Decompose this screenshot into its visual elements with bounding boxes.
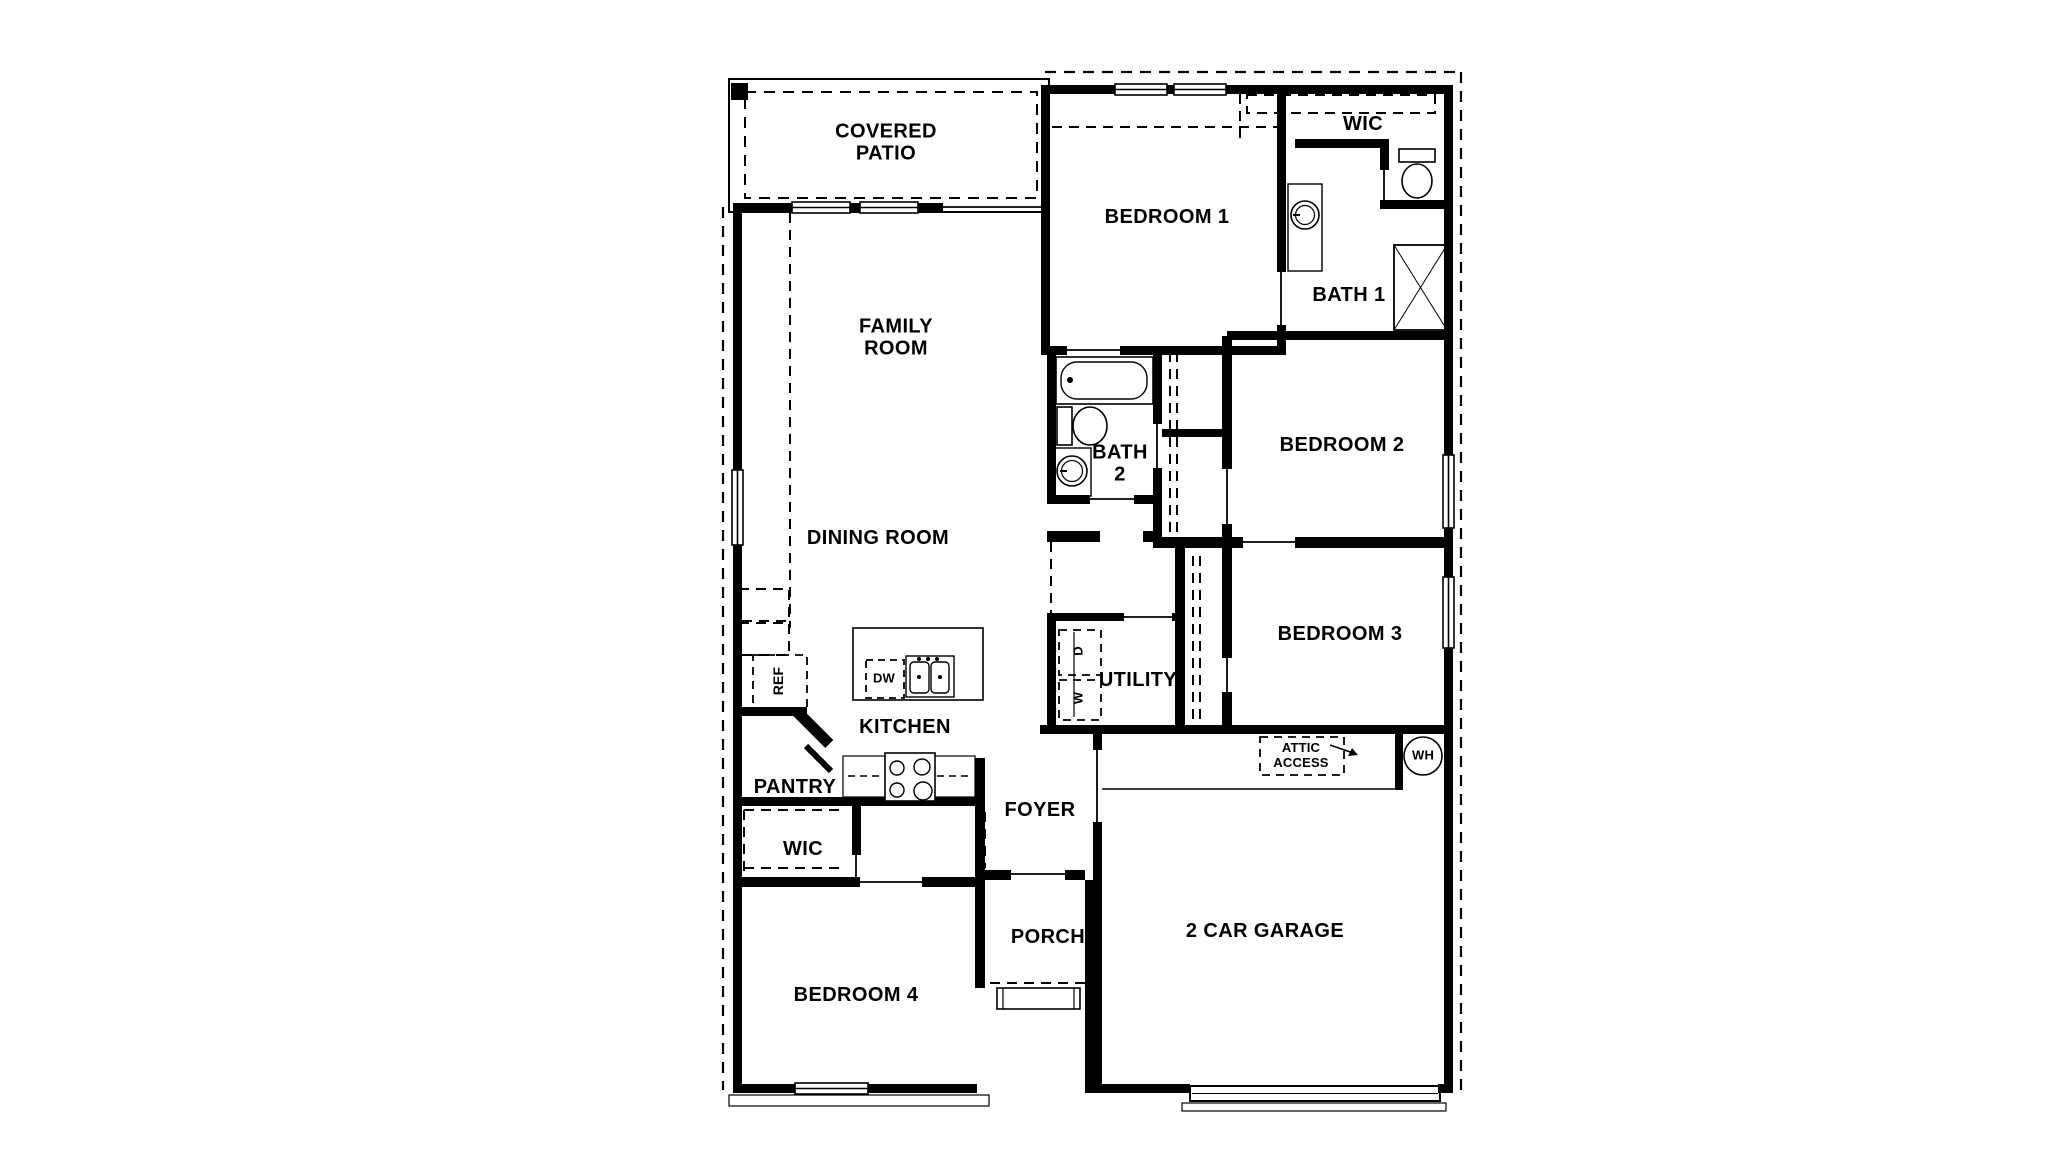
bedroom4-exterior-trim <box>729 1095 989 1106</box>
shower-icon <box>1394 245 1447 330</box>
water-heater-icon <box>1404 737 1442 775</box>
refrigerator-box <box>753 655 807 709</box>
kitchen-island <box>853 628 983 700</box>
patio-post <box>731 83 748 100</box>
vanity-sink-icon-bath1 <box>1288 184 1322 271</box>
window-top-bedroom1-b <box>1174 84 1226 95</box>
tub-icon <box>1056 357 1153 404</box>
utility-fixtures <box>1059 630 1101 720</box>
floor-plan-page: COVERED PATIO BEDROOM 1 WIC BATH 1 FAMIL… <box>0 0 2048 1151</box>
window-bedroom2-right <box>1443 455 1454 528</box>
kitchen-corner-cabinet-dashed-b <box>739 623 789 655</box>
dishwasher-box <box>866 660 904 698</box>
covered-patio-outline <box>729 79 1049 212</box>
window-family-room-a <box>792 202 850 213</box>
dryer-box <box>1059 630 1101 675</box>
bath2-fixtures <box>1054 357 1153 496</box>
toilet-icon-bath2 <box>1057 407 1107 445</box>
range-icon <box>885 753 935 801</box>
garage-apron-trim <box>1182 1103 1446 1111</box>
window-bedroom4-bottom <box>795 1083 868 1094</box>
washer-box <box>1059 680 1101 720</box>
window-top-bedroom1-a <box>1115 84 1167 95</box>
pantry-door-leaf <box>806 746 831 771</box>
garage-door <box>1190 1086 1440 1101</box>
wic-shelf-dashed <box>1247 95 1435 113</box>
bath1-fixtures <box>1288 149 1447 330</box>
kitchen-sink-icon <box>906 656 954 697</box>
window-family-room-b <box>860 202 918 213</box>
attic-access-box <box>1260 737 1344 775</box>
exterior-walls <box>733 85 1453 1093</box>
sink-icon-bath2 <box>1054 448 1091 496</box>
porch-step <box>997 988 1080 1009</box>
kitchen-corner-cabinet-dashed-a <box>739 589 789 621</box>
toilet-icon-bath1 <box>1399 149 1435 198</box>
window-dining-left <box>732 470 743 545</box>
floor-plan-drawing <box>0 0 2048 1151</box>
interior-walls <box>733 94 1453 988</box>
window-bedroom3-right <box>1443 577 1454 648</box>
